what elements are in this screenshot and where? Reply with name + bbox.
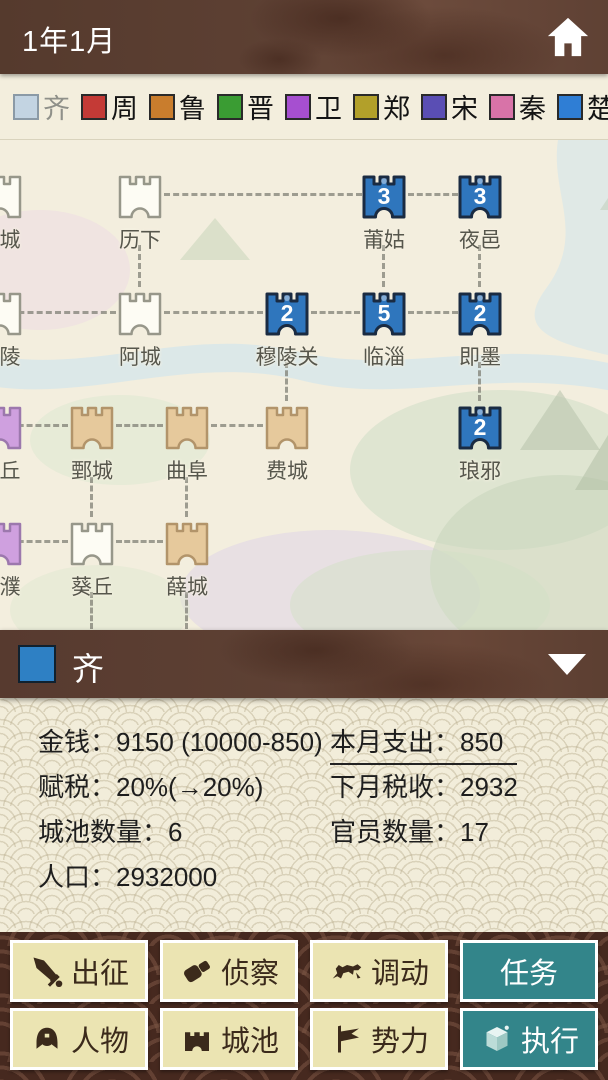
castle-icon [265,403,309,450]
legend-item[interactable]: 周 [81,87,138,126]
action-button-label: 任务 [500,950,558,992]
state-label: 宋 [451,87,478,126]
stat-row: 本月支出：850 [330,722,517,765]
selected-state-name: 齐 [72,644,104,690]
state-label: 郑 [383,87,410,126]
road-dashed-line [138,245,141,287]
road-dashed-line [116,540,163,543]
state-color-swatch [149,94,175,120]
map-city[interactable] [0,519,22,566]
map-city[interactable] [0,403,22,450]
state-label: 鲁 [179,87,206,126]
legend-item[interactable]: 宋 [421,87,478,126]
state-color-swatch [285,94,311,120]
map-city[interactable] [118,172,162,219]
castle-icon [118,289,162,336]
castle-icon [0,289,22,336]
state-color-swatch [489,94,515,120]
road-dashed-line [90,592,93,629]
action-button-label: 城池 [221,1018,279,1060]
road-dashed-line [164,311,263,314]
map-city[interactable] [0,289,22,336]
action-button[interactable]: 调动 [310,940,448,1002]
action-button-label: 执行 [521,1018,579,1060]
map-city[interactable] [265,403,309,450]
map-city[interactable] [70,519,114,566]
action-button[interactable]: 城池 [160,1008,298,1070]
action-button[interactable]: 侦察 [160,940,298,1002]
state-color-swatch [217,94,243,120]
state-color-swatch [81,94,107,120]
stat-row: 赋税：20%(→20%) [38,767,263,804]
state-label: 周 [111,87,138,126]
troop-count: 2 [458,414,502,441]
road-dashed-line [285,362,288,401]
castle-icon [0,172,22,219]
castle-icon [165,519,209,566]
state-color-swatch [557,94,583,120]
troop-count: 3 [458,183,502,210]
horse-icon [329,953,365,989]
home-icon [546,16,590,58]
road-dashed-line [185,592,188,629]
legend-item[interactable]: 晋 [217,87,274,126]
road-dashed-line [408,193,458,196]
action-bar: 出征侦察调动任务人物城池势力执行 [0,932,608,1080]
castle-icon [70,519,114,566]
stat-row: 人口：2932000 [38,857,217,894]
castle-icon [0,519,22,566]
legend-item[interactable]: 秦 [489,87,546,126]
legend-item[interactable]: 楚 [557,87,608,126]
troop-count: 2 [265,300,309,327]
map-city[interactable]: 2 [265,289,309,336]
chevron-down-icon[interactable] [548,654,586,675]
map-city[interactable] [165,403,209,450]
sword-icon [29,953,65,989]
stat-row: 官员数量：17 [330,812,489,849]
map-city[interactable] [70,403,114,450]
castle-icon [118,172,162,219]
action-button-label: 调动 [371,950,429,992]
helmet-icon [29,1021,65,1057]
home-button[interactable] [546,16,590,58]
road-dashed-line [90,477,93,517]
action-button-label: 出征 [71,950,129,992]
map-city[interactable] [0,172,22,219]
map-city[interactable]: 5 [362,289,406,336]
road-dashed-line [478,245,481,287]
troop-count: 2 [458,300,502,327]
legend-item[interactable]: 卫 [285,87,342,126]
state-color-swatch [353,94,379,120]
action-button[interactable]: 势力 [310,1008,448,1070]
stat-row: 城池数量：6 [38,812,182,849]
castle-icon [0,403,22,450]
troop-count: 5 [362,300,406,327]
road-dashed-line [408,311,458,314]
state-label: 卫 [315,87,342,126]
action-button-label: 势力 [371,1018,429,1060]
map-city[interactable]: 2 [458,403,502,450]
state-color-swatch [13,94,39,120]
map-city[interactable]: 3 [362,172,406,219]
action-button[interactable]: 人物 [10,1008,148,1070]
road-dashed-line [211,424,263,427]
stat-row: 金钱：9150 (10000-850) [38,722,323,759]
map-city[interactable]: 2 [458,289,502,336]
castle-icon [179,1021,215,1057]
state-label: 晋 [247,87,274,126]
state-color-swatch [421,94,447,120]
state-label: 楚 [587,87,608,126]
action-button[interactable]: 任务 [460,940,598,1002]
road-dashed-line [185,477,188,517]
legend-item[interactable]: 齐 [13,87,70,126]
road-dashed-line [382,245,385,287]
stat-row: 下月税收：2932 [330,767,518,804]
cube-icon [479,1021,515,1057]
road-dashed-line [164,193,362,196]
state-legend: 齐周鲁晋卫郑宋秦楚吴 [0,74,608,140]
flag-icon [329,1021,365,1057]
action-button-label: 侦察 [221,950,279,992]
game-screen: 1年1月 齐周鲁晋卫郑宋秦楚吴 城历下3莆姑3夜邑陵阿城2穆陵关5临淄2即墨丘鄄… [0,0,608,1080]
action-button[interactable]: 执行 [460,1008,598,1070]
spyglass-icon [179,953,215,989]
world-map[interactable]: 城历下3莆姑3夜邑陵阿城2穆陵关5临淄2即墨丘鄄城曲阜费城2琅邪濮葵丘薛城 [0,140,608,630]
top-bar: 1年1月 [0,0,608,74]
state-label: 齐 [43,87,70,126]
map-city[interactable] [118,289,162,336]
map-city[interactable]: 3 [458,172,502,219]
selected-state-swatch [18,645,56,683]
road-dashed-line [311,311,360,314]
date-title: 1年1月 [22,18,116,60]
road-dashed-line [478,362,481,401]
state-label: 秦 [519,87,546,126]
action-button-label: 人物 [71,1018,129,1060]
state-panel-header[interactable]: 齐 [0,630,608,698]
road-dashed-line [116,424,163,427]
castle-icon [70,403,114,450]
map-city[interactable] [165,519,209,566]
troop-count: 3 [362,183,406,210]
legend-item[interactable]: 鲁 [149,87,206,126]
castle-icon [165,403,209,450]
action-button[interactable]: 出征 [10,940,148,1002]
legend-item[interactable]: 郑 [353,87,410,126]
state-stats-panel: 金钱：9150 (10000-850)赋税：20%(→20%)城池数量：6人口：… [0,698,608,932]
